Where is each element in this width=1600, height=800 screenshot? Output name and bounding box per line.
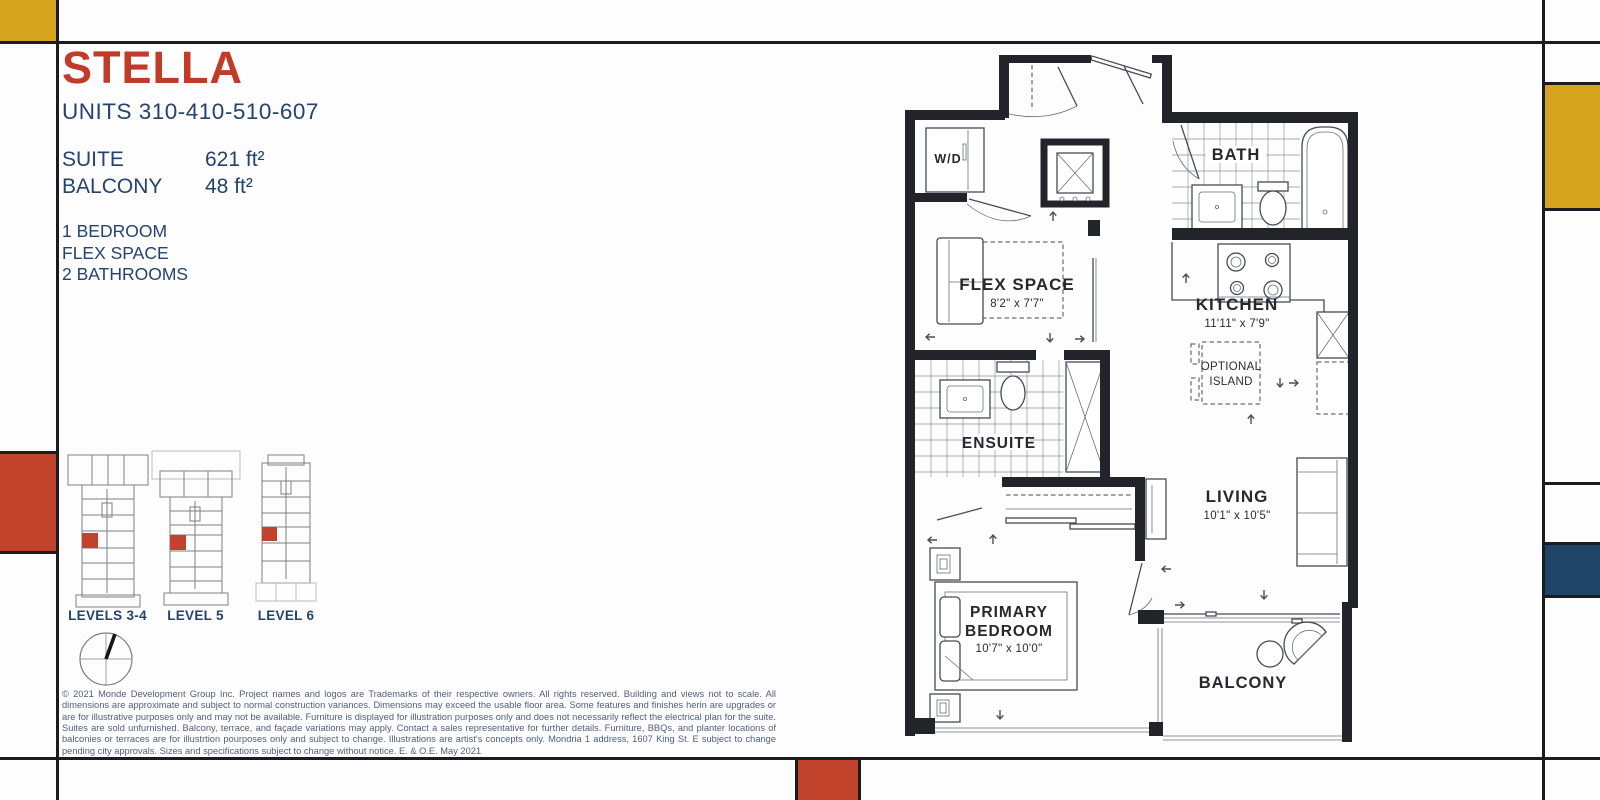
mondrian-red-bottom [795, 760, 861, 800]
area-stats: SUITE621 ft² BALCONY48 ft² [62, 148, 265, 202]
primary-door [1129, 563, 1142, 615]
room-label-flex: FLEX SPACE [959, 275, 1074, 294]
ensuite-fixtures [940, 362, 1104, 472]
highlighted-unit [262, 527, 277, 541]
feature-list: 1 BEDROOM FLEX SPACE 2 BATHROOMS [62, 221, 188, 286]
balcony-value: 48 ft² [205, 175, 253, 198]
frame-line-right-segment [1545, 482, 1600, 485]
utility-closet [1044, 142, 1106, 204]
room-dims-flex: 8'2" x 7'7" [990, 298, 1044, 310]
feature-bedroom: 1 BEDROOM [62, 221, 188, 243]
feature-bathrooms: 2 BATHROOMS [62, 264, 188, 286]
ensuite-door [937, 508, 982, 520]
stat-row-suite: SUITE621 ft² [62, 148, 265, 175]
bath-fixtures [1192, 127, 1348, 229]
highlighted-unit [170, 535, 186, 550]
feature-flex: FLEX SPACE [62, 243, 188, 265]
island-label-1: OPTIONAL [1201, 361, 1262, 373]
balcony-sliding-door [1164, 612, 1340, 623]
living-sofa [1297, 458, 1347, 566]
floorplan-sheet: STELLA UNITS 310-410-510-607 SUITE621 ft… [0, 0, 1600, 800]
room-dims-primary: 10'7" x 10'0" [976, 643, 1043, 655]
stat-row-balcony: BALCONY48 ft² [62, 175, 265, 202]
room-label-ensuite: ENSUITE [962, 435, 1036, 452]
room-label-wd: W/D [934, 152, 961, 166]
balcony-table [1257, 641, 1283, 667]
room-dims-kitchen: 11'11" x 7'9" [1204, 318, 1269, 330]
highlighted-unit [82, 533, 98, 548]
media-console [1146, 479, 1166, 539]
room-label-living: LIVING [1206, 487, 1269, 506]
optional-island [1202, 342, 1260, 404]
balcony-chair [1284, 622, 1326, 664]
nightstand [930, 548, 960, 580]
nightstand [930, 694, 960, 722]
suite-value: 621 ft² [205, 148, 265, 171]
balcony-furniture [1257, 622, 1326, 667]
disclaimer-text: © 2021 Monde Development Group Inc. Proj… [62, 689, 776, 757]
mondrian-yellow-topleft [0, 0, 56, 41]
suite-label: SUITE [62, 148, 205, 172]
entry-door [1091, 56, 1151, 78]
room-label-kitchen: KITCHEN [1196, 295, 1279, 314]
level-label-5: LEVEL 5 [148, 608, 243, 623]
level-label-3-4: LEVELS 3-4 [60, 608, 155, 623]
frame-line-left [56, 0, 59, 800]
level-keyplan-6 [240, 447, 332, 609]
level-label-6: LEVEL 6 [236, 608, 336, 623]
page-title: STELLA [62, 42, 243, 94]
dishwasher [1317, 362, 1349, 414]
mondrian-yellow-right [1545, 82, 1600, 211]
room-dims-living: 10'1" x 10'5" [1204, 510, 1271, 522]
room-label-primary-2: BEDROOM [965, 623, 1053, 640]
floorplan-drawing: W/D BATH FLEX SPACE 8'2" x 7'7" KITCHEN … [896, 46, 1366, 746]
north-compass-icon [76, 629, 136, 689]
units-label: UNITS 310-410-510-607 [62, 99, 319, 125]
room-label-balcony: BALCONY [1199, 674, 1288, 692]
mondrian-blue-right [1545, 542, 1600, 598]
balcony-label: BALCONY [62, 175, 205, 199]
room-label-bath: BATH [1212, 146, 1261, 164]
room-label-primary-1: PRIMARY [970, 604, 1048, 621]
level-keyplan-3-4 [62, 447, 154, 609]
mondrian-red-left [0, 451, 56, 554]
island-label-2: ISLAND [1209, 376, 1252, 388]
level-keyplan-5 [150, 447, 242, 609]
